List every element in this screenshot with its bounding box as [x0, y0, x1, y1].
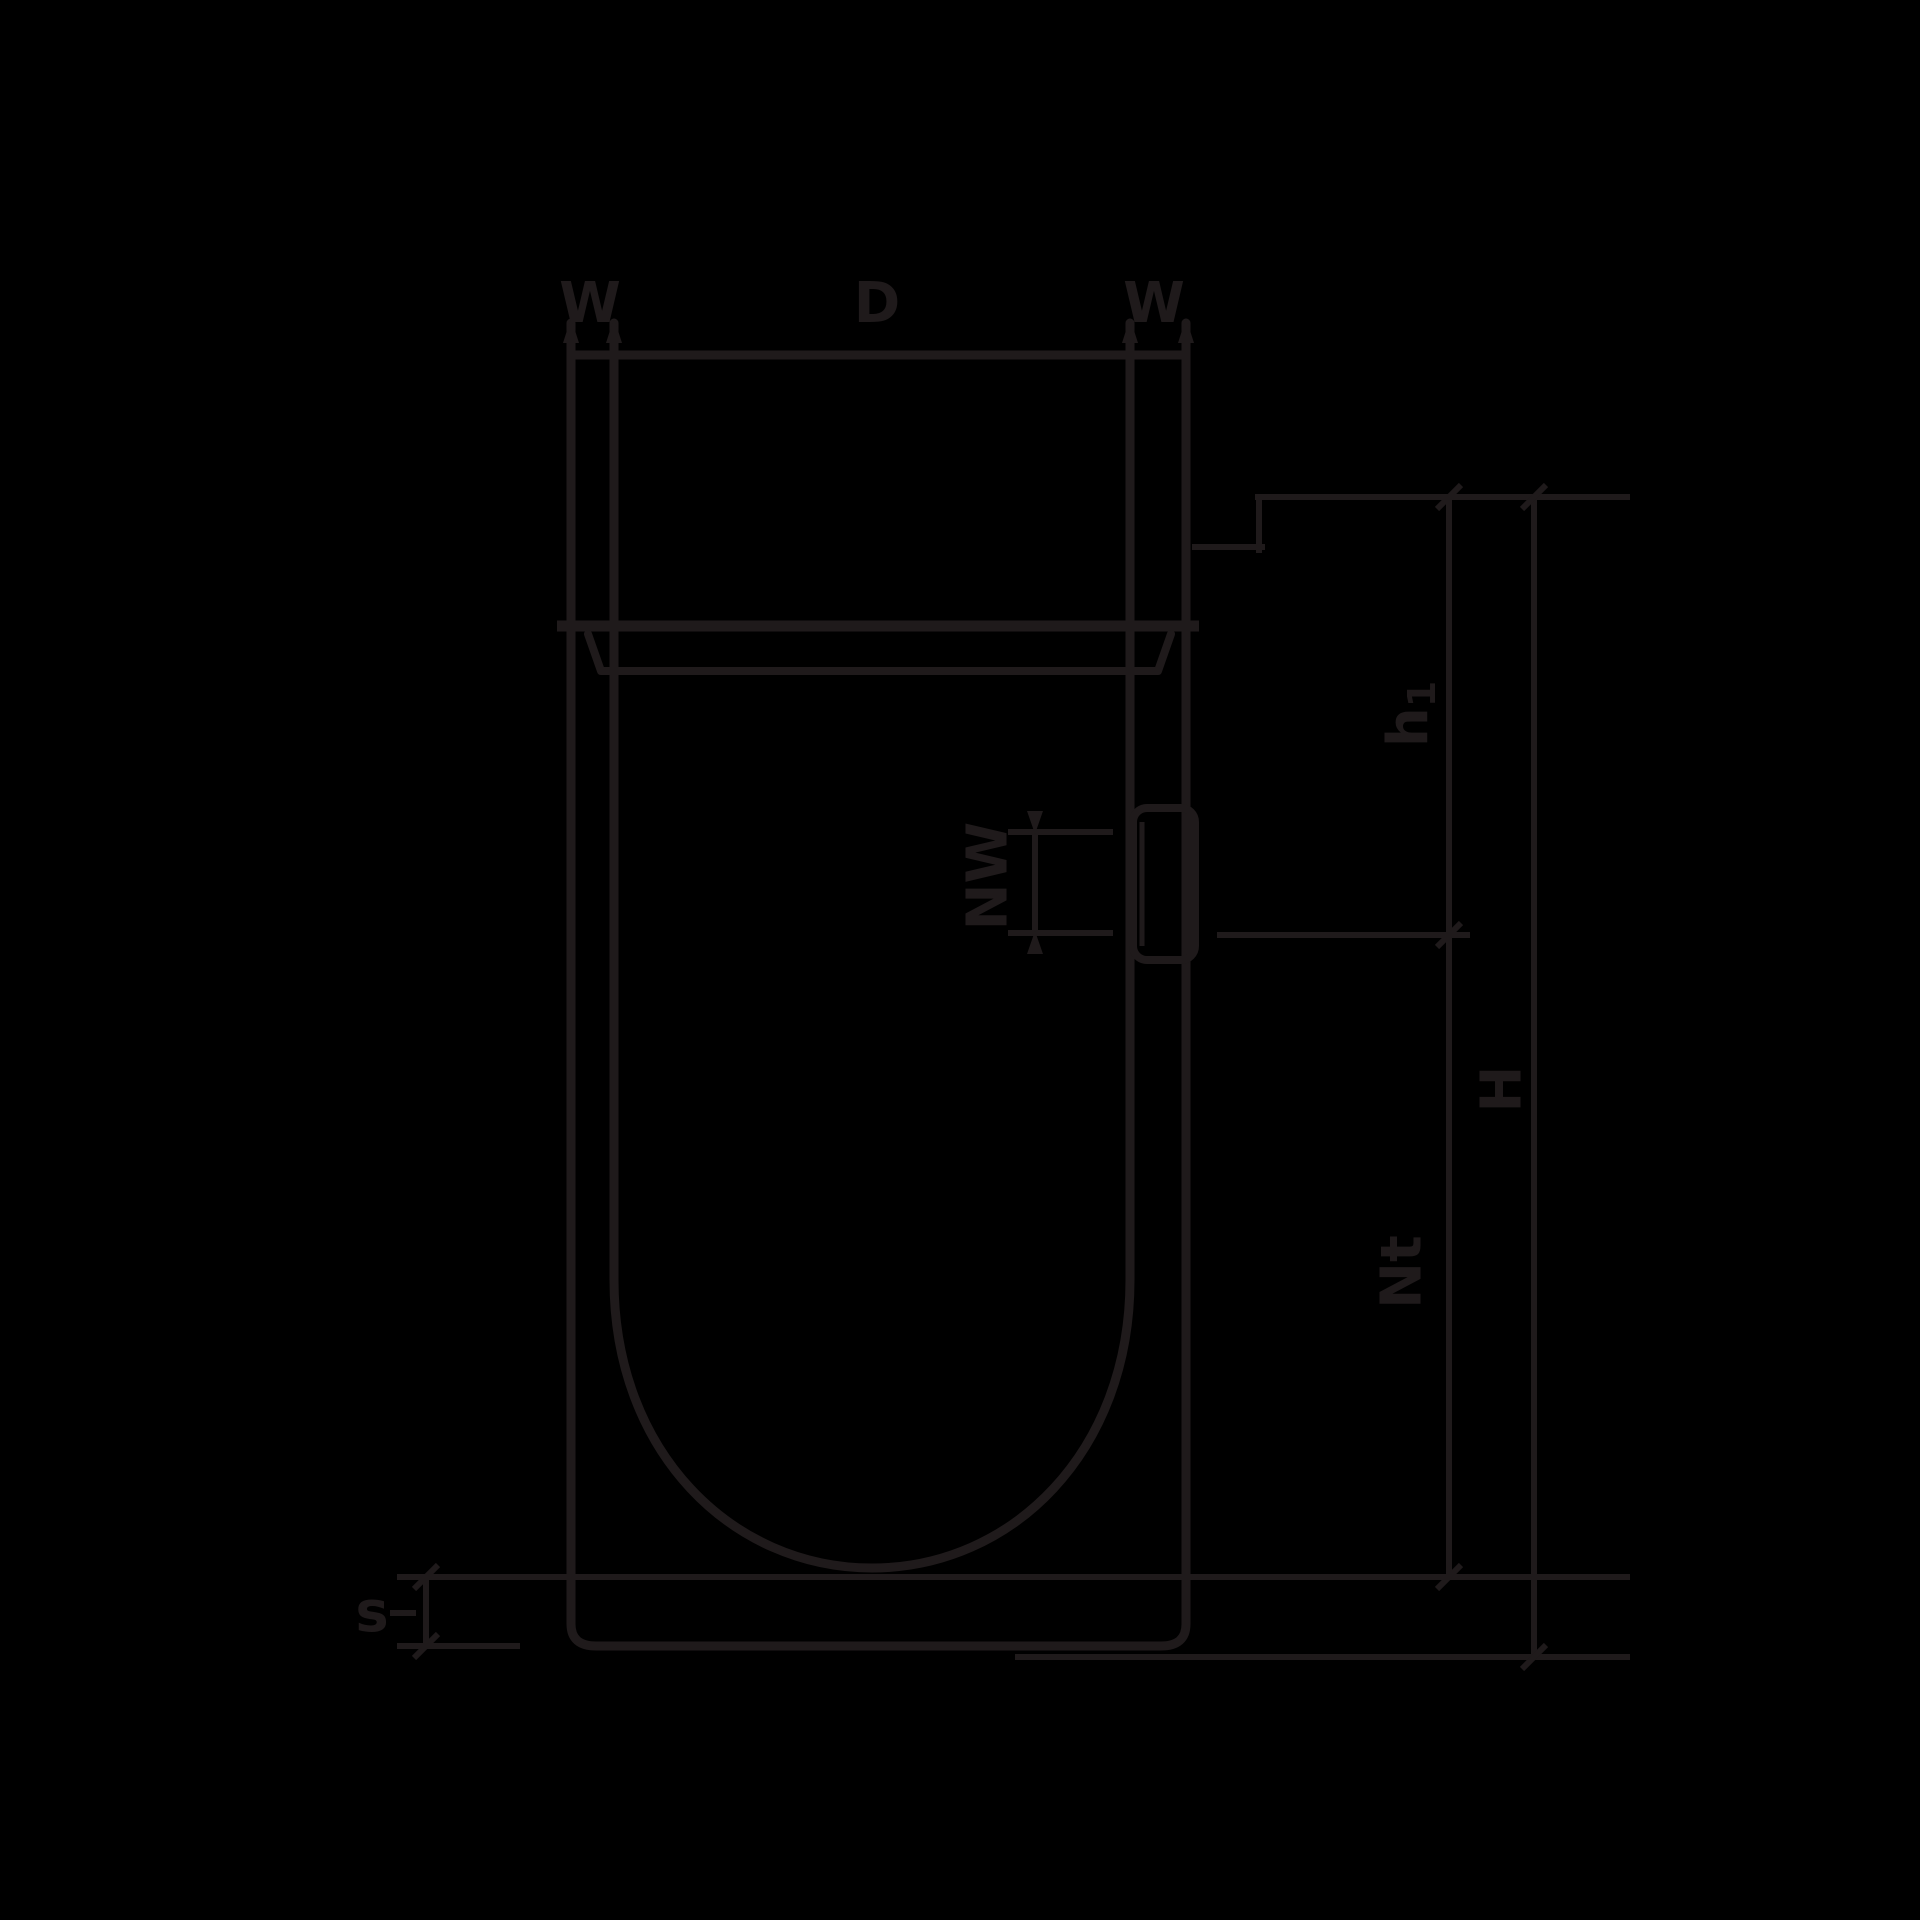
vessel-inner-wall	[614, 323, 1130, 1568]
label-usable-depth: Nt	[1370, 1235, 1435, 1309]
vessel-outer-wall-right	[1161, 323, 1186, 1646]
label-total-height: H	[1470, 1066, 1535, 1113]
vessel-outer-wall-left	[571, 323, 596, 1646]
label-wall-right: W	[1123, 271, 1185, 336]
vessel-outline	[571, 323, 1186, 1646]
side-port	[1133, 808, 1195, 960]
technical-drawing: W D W NW h1 H Nt	[0, 0, 1920, 1920]
label-bottom-gap: s	[355, 1580, 388, 1645]
right-dimensions: h1 H Nt	[397, 485, 1630, 1669]
label-upper-height: h1	[1376, 681, 1445, 747]
flange-skirt	[588, 634, 1171, 671]
label-wall-left: W	[559, 271, 621, 336]
label-inner-diameter: D	[854, 271, 900, 336]
port-dimension: NW	[956, 811, 1114, 954]
label-port-nominal-width: NW	[956, 822, 1021, 931]
top-dimension: W D W	[559, 271, 1194, 343]
flange	[557, 626, 1199, 671]
